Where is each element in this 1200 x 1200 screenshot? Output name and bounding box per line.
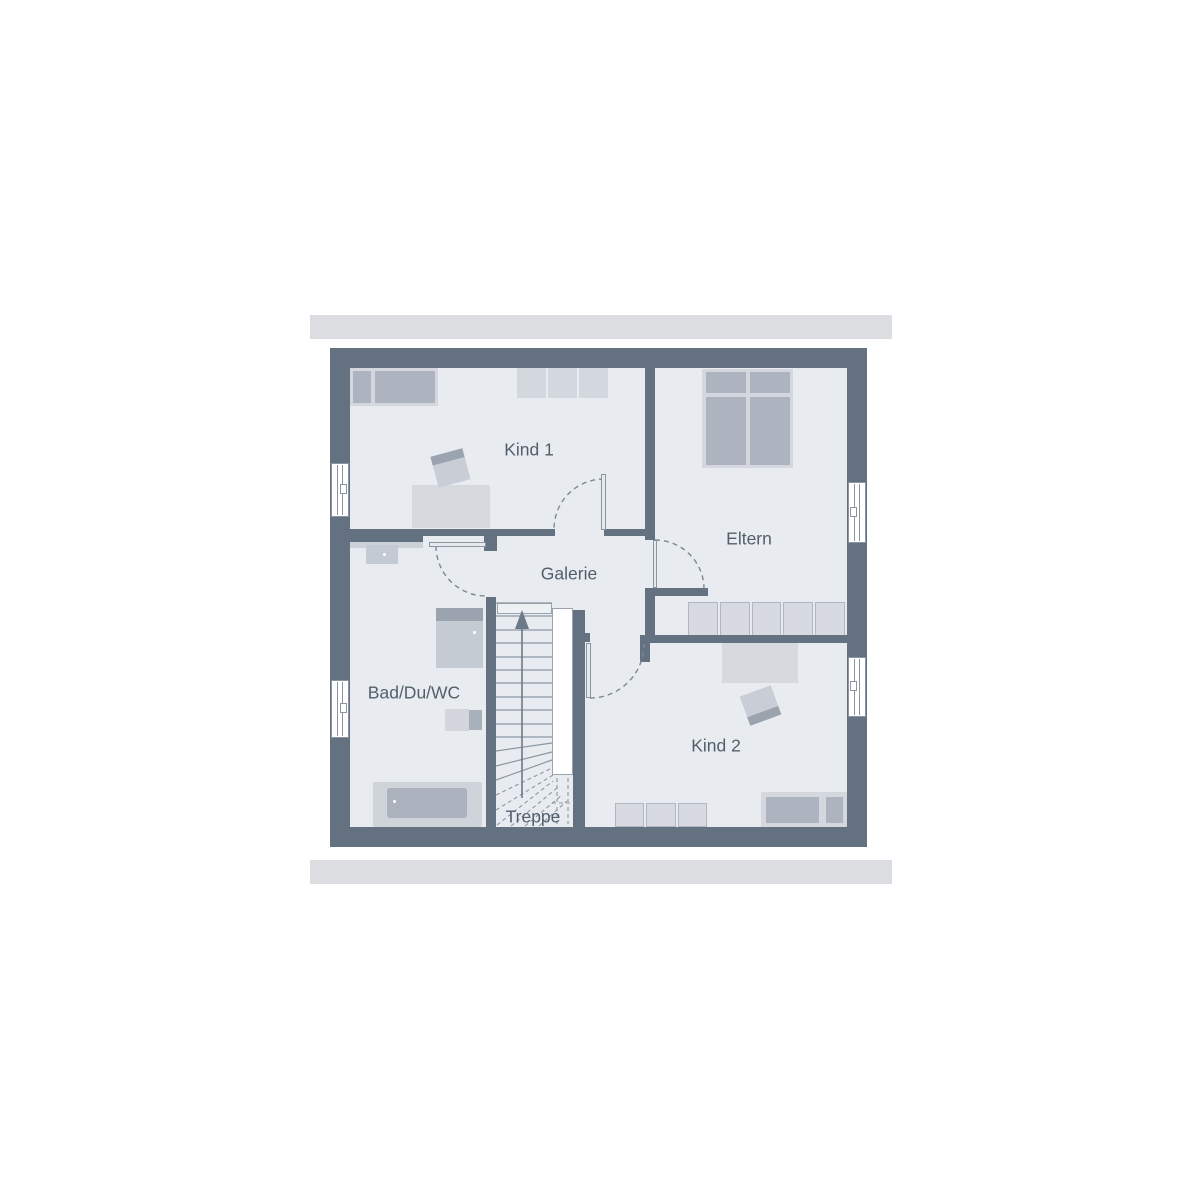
bathtub-basin (387, 788, 467, 818)
drain-dot (393, 800, 396, 803)
window-handle (850, 681, 857, 691)
sideboard-eltern (688, 602, 845, 637)
wall-kind1-south-east (604, 529, 645, 536)
wardrobe-kind2 (615, 803, 707, 827)
bed-mattress (750, 397, 790, 465)
shower-wall-panel (436, 608, 483, 621)
room-label-kind1: Kind 1 (504, 441, 554, 459)
roof-band-bottom (310, 860, 892, 884)
wall-eltern-kind2 (640, 635, 848, 643)
toilet-cistern (469, 710, 482, 730)
floor-plan-canvas: Kind 1 Eltern Galerie Bad/Du/WC Kind 2 T… (0, 0, 1200, 1200)
bed-kind1 (349, 368, 438, 406)
bed-pillow (353, 371, 371, 403)
wall-stub-kind2-jamb (640, 643, 650, 662)
wall-kind1-eltern (645, 368, 655, 540)
outer-wall-west (330, 368, 350, 827)
door-leaf-kind1 (601, 474, 606, 530)
desk-kind2 (722, 643, 798, 683)
desk-kind1 (412, 485, 490, 528)
bed-mattress (706, 397, 746, 465)
room-label-treppe: Treppe (506, 808, 561, 826)
window-eltern (848, 482, 866, 543)
washbasin (366, 545, 398, 564)
room-label-kind2: Kind 2 (691, 737, 741, 755)
door-leaf-bad (429, 542, 486, 547)
drain-dot (383, 553, 386, 556)
wall-stairs-west (486, 597, 496, 827)
bed-mattress (375, 371, 435, 403)
shower (436, 608, 483, 668)
bed-pillow (750, 372, 790, 393)
room-label-bad-du-wc: Bad/Du/WC (368, 684, 460, 702)
wall-stub-stairwell (573, 633, 590, 642)
outer-wall-south (330, 827, 867, 847)
stairwell-opening (552, 608, 573, 775)
bed-kind2 (761, 792, 847, 827)
bathtub (373, 782, 482, 827)
wall-bad-north (350, 535, 423, 542)
bed-pillow (826, 797, 843, 823)
window-kind1 (331, 463, 349, 517)
bed-pillow (706, 372, 746, 393)
window-handle (340, 703, 347, 713)
room-label-galerie: Galerie (541, 565, 597, 583)
window-handle (340, 484, 347, 494)
wall-stub-eltern (655, 588, 708, 596)
stair-first-tread (497, 603, 552, 614)
window-kind2 (848, 657, 866, 717)
window-bad (331, 680, 349, 738)
bed-mattress (766, 797, 819, 823)
window-handle (850, 507, 857, 517)
outer-wall-east (847, 368, 867, 827)
shower-drain-dot (473, 631, 476, 634)
roof-band-top (310, 315, 892, 339)
room-label-eltern: Eltern (726, 530, 772, 548)
door-leaf-kind2 (586, 643, 591, 698)
wardrobe-kind1 (517, 368, 608, 398)
toilet (445, 709, 469, 731)
wall-stairwell-east (573, 610, 585, 827)
wall-galerie-eltern (645, 588, 655, 643)
double-bed-eltern (702, 369, 793, 468)
outer-wall-north (330, 348, 867, 368)
door-leaf-eltern (653, 540, 657, 588)
